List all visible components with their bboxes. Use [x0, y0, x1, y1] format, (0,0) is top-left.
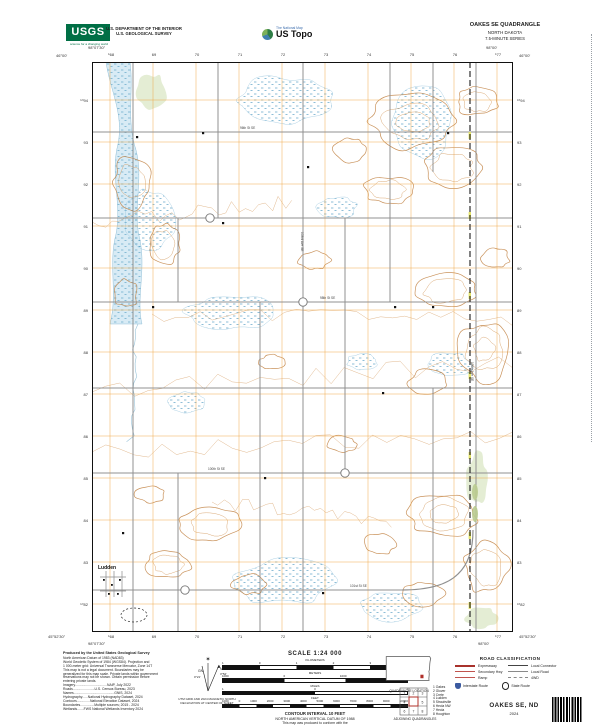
corner-nw-lat: 46°00' — [56, 53, 67, 58]
interstate-shield-icon — [455, 683, 461, 689]
grid-label: 93 — [517, 140, 539, 145]
grid-label: 76 — [448, 52, 462, 57]
north-dakota-outline — [384, 654, 434, 683]
scale-tick: 7000 — [350, 700, 357, 703]
grid-label: ⁵77 — [491, 634, 505, 639]
grid-label: 85 — [517, 476, 539, 481]
road-class-label: Local Connector — [531, 664, 561, 668]
grid-label: 92 — [66, 182, 88, 187]
road-name-label: 101st St SE — [350, 584, 367, 588]
grid-label: 93 — [66, 140, 88, 145]
topo-map-sheet: USGS science for a changing world U.S. D… — [0, 0, 600, 725]
barcode — [552, 697, 582, 722]
grid-label: ⁵⁰94 — [517, 98, 539, 103]
scale-tick: 0 — [283, 675, 285, 678]
place-label: Ludden — [98, 565, 116, 571]
state-route-label: State Route — [511, 684, 529, 688]
grid-label: ⁵⁰94 — [66, 98, 88, 103]
corner-se-lat: 45°52'30" — [519, 634, 536, 639]
grid-label: 91 — [517, 224, 539, 229]
scale-tick: 1000 — [222, 700, 229, 703]
corner-se-lon: 98°00' — [478, 641, 489, 646]
grid-label: 87 — [66, 392, 88, 397]
adjoining-grid-number: 8 — [422, 710, 424, 714]
grid-label: 83 — [517, 560, 539, 565]
road-class-label: Expressway — [478, 664, 508, 668]
grid-label: 92 — [517, 182, 539, 187]
grid-label: 86 — [517, 434, 539, 439]
sheet-name: OAKES SE, ND — [468, 702, 560, 709]
grid-label: 72 — [276, 52, 290, 57]
scale-tick: 0 — [259, 662, 261, 665]
right-margin-fold-line — [591, 34, 592, 442]
road-classification-rows: ExpresswayLocal ConnectorSecondary HwyLo… — [455, 664, 565, 680]
scale-tick: 1 — [222, 688, 224, 691]
scale-tick: 2 — [333, 662, 335, 665]
scale-tick: 2000 — [267, 700, 274, 703]
scale-tick: 1 — [222, 662, 224, 665]
road-name-label: 106th Ave SE — [470, 362, 474, 381]
sheet-title-block: OAKES SE, ND 2024 — [468, 702, 560, 716]
grid-label: 76 — [448, 634, 462, 639]
road-swatch — [455, 671, 475, 672]
quad-location-marker — [420, 675, 423, 679]
grid-label: 91 — [66, 224, 88, 229]
grid-label: 89 — [517, 308, 539, 313]
scale-tick: 9000 — [383, 700, 390, 703]
corner-sw-lon: 98°07'30" — [88, 641, 105, 646]
corner-ne-lon: 98°00' — [486, 45, 497, 50]
grid-label: 89 — [66, 308, 88, 313]
corner-nw-lon: 98°07'30" — [88, 45, 105, 50]
adjoining-grid-number: 7 — [413, 710, 415, 714]
scale-block: SCALE 1:24 000 KILOMETERS101234METERS100… — [222, 651, 408, 725]
scale-tick: 1 — [296, 662, 298, 665]
road-classification-title: ROAD CLASSIFICATION — [455, 656, 565, 661]
grid-label: 88 — [66, 350, 88, 355]
road-swatch — [508, 665, 528, 666]
scale-tick: 0 — [239, 700, 241, 703]
scale-title: SCALE 1:24 000 — [222, 651, 408, 657]
credit-line: Wetlands.......FWS National Wetlands Inv… — [63, 708, 185, 712]
adjoining-grid-number: 3 — [422, 692, 424, 696]
interstate-route-label: Interstate Route — [463, 684, 488, 688]
grid-label: 87 — [517, 392, 539, 397]
sheet-year: 2024 — [468, 711, 560, 716]
grid-label: 84 — [66, 518, 88, 523]
grid-label: ⁵77 — [491, 52, 505, 57]
center-quad-cell — [409, 697, 418, 706]
grid-label: 90 — [517, 266, 539, 271]
grid-label: 74 — [362, 52, 376, 57]
road-name-label: 96th St SE — [240, 126, 255, 130]
grid-north-label: GN — [198, 669, 204, 673]
grid-label: 83 — [66, 560, 88, 565]
grid-label: 69 — [147, 634, 161, 639]
scale-tick: 1000 — [340, 675, 347, 678]
contour-interval-note: CONTOUR INTERVAL 10 FEET — [222, 711, 408, 716]
road-swatch — [455, 665, 475, 667]
adjoining-grid-number: 5 — [422, 701, 424, 705]
adjoining-quadrangles-label: ADJOINING QUADRANGLES — [381, 717, 449, 721]
grid-label: 69 — [147, 52, 161, 57]
corner-ne-lat: 46°00' — [519, 53, 530, 58]
grid-label: ⁵⁰82 — [517, 602, 539, 607]
grid-label: 71 — [233, 634, 247, 639]
grid-label: ⁵68 — [104, 52, 118, 57]
road-class-label: Secondary Hwy — [478, 670, 508, 674]
road-name-label: 100th St SE — [208, 467, 225, 471]
road-swatch — [455, 677, 475, 678]
scale-tick: 3000 — [283, 700, 290, 703]
grid-label: 84 — [517, 518, 539, 523]
scale-tick: 4000 — [300, 700, 307, 703]
adjoining-quadrangles-grid: 12345678 — [399, 687, 429, 717]
adjoining-grid-number: 2 — [413, 692, 415, 696]
state-route-icon — [502, 682, 510, 690]
grid-label: 74 — [362, 634, 376, 639]
adjoining-grid-number: 6 — [404, 710, 406, 714]
scale-bar — [222, 665, 408, 669]
grid-label: 88 — [517, 350, 539, 355]
road-class-row: Ramp4WD — [455, 676, 565, 680]
grid-label: 90 — [66, 266, 88, 271]
grid-label: ⁵⁰82 — [66, 602, 88, 607]
grid-label: 86 — [66, 434, 88, 439]
adjoining-grid-number: 4 — [404, 701, 406, 705]
road-name-label: 98th St SE — [320, 296, 335, 300]
grid-label: 73 — [319, 634, 333, 639]
grid-label: ⁵68 — [104, 634, 118, 639]
road-name-label: 103rd Ave SE — [300, 232, 304, 251]
scale-tick: 0 — [314, 688, 316, 691]
scale-bar — [222, 678, 408, 682]
grid-label: 85 — [66, 476, 88, 481]
road-class-row: Secondary HwyLocal Road — [455, 670, 565, 674]
true-north-star: ✶ — [205, 656, 210, 663]
map-canvas: Ludden96th St SE98th St SE100th St SE101… — [92, 62, 513, 632]
road-class-label: Local Road — [531, 670, 561, 674]
scale-tick: 3 — [369, 662, 371, 665]
road-classification-legend: ROAD CLASSIFICATION ExpresswayLocal Conn… — [455, 656, 565, 690]
scale-tick: 1000 — [222, 675, 229, 678]
road-class-label: 4WD — [531, 676, 561, 680]
road-class-label: Ramp — [478, 676, 508, 680]
grid-label: 70 — [190, 634, 204, 639]
grid-label: 75 — [405, 634, 419, 639]
scale-tick: 1000 — [250, 700, 257, 703]
grid-label: 72 — [276, 634, 290, 639]
corner-sw-lat: 45°52'30" — [48, 634, 65, 639]
grid-label: 70 — [190, 52, 204, 57]
map-collar-footer: Produced by the United States Geological… — [0, 650, 600, 725]
scale-bars: KILOMETERS101234METERS1000010002000MILES… — [222, 658, 408, 708]
scale-tick: 5000 — [317, 700, 324, 703]
scale-tick: 6000 — [333, 700, 340, 703]
route-markers-row: Interstate Route State Route — [455, 682, 565, 690]
grid-label: 75 — [405, 52, 419, 57]
map-area: Ludden96th St SE98th St SE100th St SE101… — [0, 0, 600, 660]
adjoining-grid-number: 1 — [404, 692, 406, 696]
road-swatch — [508, 677, 528, 678]
grid-north-value: 0°21' — [194, 675, 201, 679]
grid-label: 73 — [319, 52, 333, 57]
grid-label: 71 — [233, 52, 247, 57]
road-swatch — [508, 671, 528, 672]
scale-bar — [222, 704, 408, 708]
road-class-row: ExpresswayLocal Connector — [455, 664, 565, 668]
scale-bar — [222, 691, 408, 695]
scale-tick: 8000 — [366, 700, 373, 703]
